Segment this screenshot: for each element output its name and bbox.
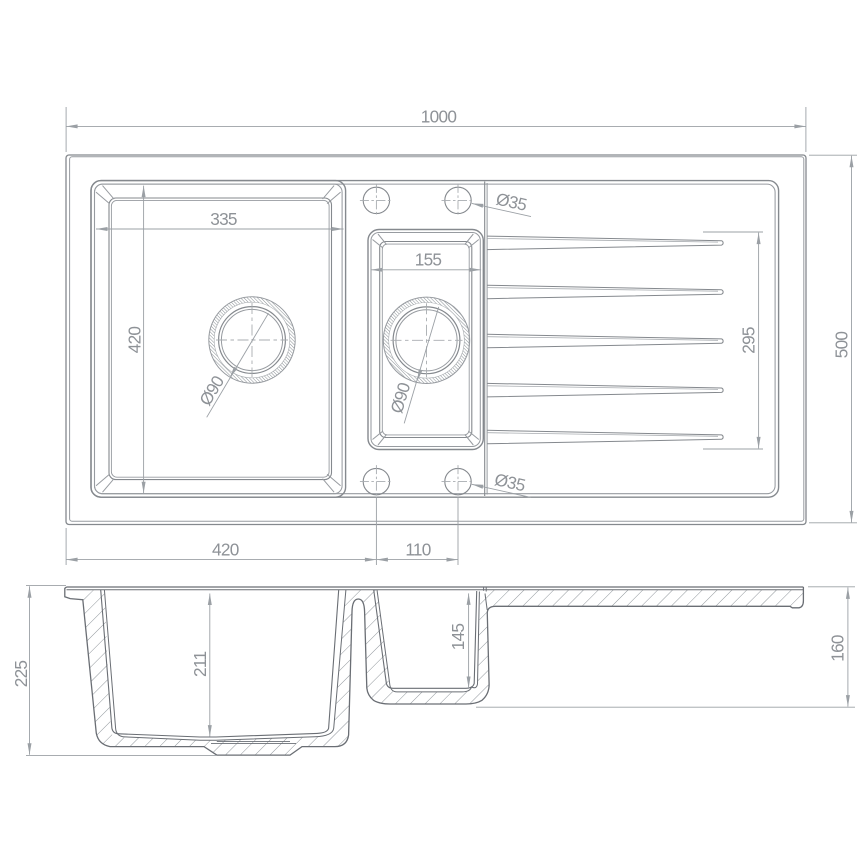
svg-text:145: 145: [448, 624, 468, 651]
svg-text:420: 420: [212, 539, 239, 559]
svg-text:Ø90: Ø90: [195, 372, 228, 408]
svg-text:160: 160: [827, 635, 847, 662]
svg-text:1000: 1000: [421, 107, 457, 127]
svg-text:420: 420: [124, 327, 144, 354]
svg-text:500: 500: [832, 332, 852, 359]
svg-text:211: 211: [190, 652, 210, 677]
svg-text:335: 335: [210, 209, 237, 229]
svg-text:225: 225: [11, 661, 31, 688]
svg-text:Ø35: Ø35: [493, 469, 527, 495]
svg-text:Ø90: Ø90: [386, 381, 414, 416]
svg-text:155: 155: [415, 249, 442, 269]
svg-text:295: 295: [738, 327, 758, 354]
svg-text:Ø35: Ø35: [494, 189, 528, 215]
svg-text:110: 110: [405, 539, 430, 559]
